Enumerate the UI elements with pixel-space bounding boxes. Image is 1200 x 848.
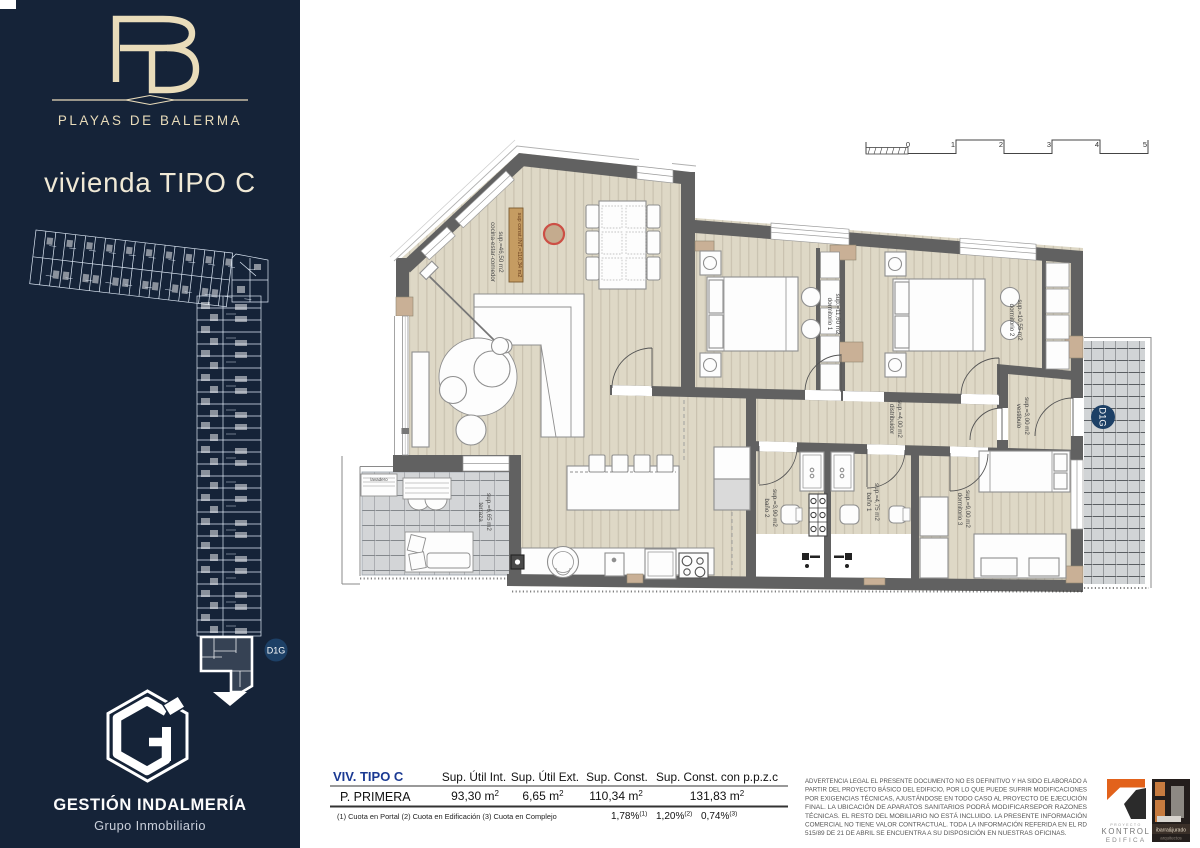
svg-text:FINAL. LA UBICACIÓN DE APARATO: FINAL. LA UBICACIÓN DE APARATOS SANITARI… (805, 802, 1087, 811)
svg-text:2: 2 (999, 140, 1003, 149)
svg-text:sup const.INT.=110,34 m2: sup const.INT.=110,34 m2 (516, 213, 522, 278)
svg-text:cocina-estar-comedor: cocina-estar-comedor (489, 222, 496, 282)
svg-text:(1) Cuota en Portal (2) Cuota: (1) Cuota en Portal (2) Cuota en Edifica… (337, 812, 557, 821)
svg-text:distribuidor: distribuidor (888, 404, 895, 434)
svg-text:sup.=11,60 m2: sup.=11,60 m2 (834, 294, 841, 335)
svg-text:vivienda TIPO C: vivienda TIPO C (44, 167, 256, 198)
svg-text:PARTIR DEL PROYECTO BÁSICO DEL: PARTIR DEL PROYECTO BÁSICO DEL EDIFICIO,… (805, 785, 1087, 794)
svg-text:COMERCIAL NO TIENE VALOR CONTR: COMERCIAL NO TIENE VALOR CONTRACTUAL. TO… (805, 820, 1087, 829)
svg-text:ADVERTENCIA LEGAL EL PRESENTE: ADVERTENCIA LEGAL EL PRESENTE DOCUMENTO … (805, 778, 1088, 785)
svg-text:terraza: terraza (477, 502, 484, 522)
svg-text:sup.=46,50 m2: sup.=46,50 m2 (497, 231, 504, 273)
svg-text:sup.=3,90 m2: sup.=3,90 m2 (771, 489, 778, 527)
svg-text:4: 4 (1095, 140, 1099, 149)
svg-text:TÉCNICAS. EL RESTO DEL MOBILIA: TÉCNICAS. EL RESTO DEL MOBILIARIO NO EST… (805, 811, 1087, 820)
svg-text:3: 3 (1047, 140, 1051, 149)
svg-text:5: 5 (1143, 140, 1147, 149)
svg-text:1: 1 (951, 140, 955, 149)
svg-text:VIV. TIPO C: VIV. TIPO C (333, 769, 404, 784)
svg-text:dormitorio 1: dormitorio 1 (826, 298, 833, 331)
svg-text:sup.=6,65 m2: sup.=6,65 m2 (485, 493, 492, 531)
svg-text:Sup. Útil Ext.: Sup. Útil Ext. (511, 770, 579, 784)
svg-text:sup.=4,75 m2: sup.=4,75 m2 (873, 483, 880, 521)
svg-text:1,78%(1): 1,78%(1) (611, 811, 647, 823)
svg-text:sup.=10,55 m2: sup.=10,55 m2 (1016, 299, 1023, 341)
svg-text:Sup. Const. con p.p.z.c: Sup. Const. con p.p.z.c (656, 770, 778, 784)
svg-text:dormitorio 2: dormitorio 2 (1008, 304, 1015, 337)
svg-text:EDIFICA: EDIFICA (1106, 837, 1147, 844)
svg-text:D1G: D1G (1097, 407, 1108, 427)
svg-text:arquitectos: arquitectos (1160, 836, 1182, 841)
svg-text:Sup. Const.: Sup. Const. (586, 770, 648, 784)
svg-text:P. PRIMERA: P. PRIMERA (340, 790, 411, 804)
svg-text:110,34 m2: 110,34 m2 (589, 789, 643, 803)
svg-text:Sup. Útil Int.: Sup. Útil Int. (442, 770, 506, 784)
svg-text:1,20%(2): 1,20%(2) (656, 811, 692, 823)
svg-text:baño 1: baño 1 (865, 493, 872, 512)
svg-text:D1G: D1G (267, 646, 286, 656)
svg-text:KONTROL: KONTROL (1102, 827, 1151, 836)
svg-text:baño 2: baño 2 (763, 499, 770, 518)
svg-text:sup.=9,00 m2: sup.=9,00 m2 (964, 490, 971, 528)
svg-text:sup.=4,00 m2: sup.=4,00 m2 (896, 400, 903, 438)
svg-text:Grupo Inmobiliario: Grupo Inmobiliario (94, 818, 206, 833)
svg-text:0,74%(3): 0,74%(3) (701, 811, 737, 823)
svg-text:93,30 m2: 93,30 m2 (451, 789, 499, 803)
svg-text:lavadero: lavadero (370, 477, 388, 482)
svg-text:POR EXIGENCIAS TÉCNICAS, AJUST: POR EXIGENCIAS TÉCNICAS, AJUSTÁNDOSE EN … (805, 793, 1087, 802)
svg-text:131,83 m2: 131,83 m2 (690, 789, 745, 803)
svg-text:vestibulo: vestibulo (1015, 404, 1022, 429)
svg-text:0: 0 (906, 140, 910, 149)
svg-text:PLAYAS DE BALERMA: PLAYAS DE BALERMA (58, 113, 242, 128)
svg-text:ibarra&jurado: ibarra&jurado (1156, 828, 1186, 834)
svg-text:515/89 DE 21 DE ABRIL SE ENCUE: 515/89 DE 21 DE ABRIL SE ENCUENTRA A SU … (805, 828, 1067, 837)
svg-text:GESTIÓN INDALMERÍA: GESTIÓN INDALMERÍA (53, 795, 246, 814)
svg-text:6,65 m2: 6,65 m2 (522, 789, 564, 803)
svg-text:sup.=3,00 m2: sup.=3,00 m2 (1023, 397, 1030, 435)
svg-text:dormitorio 3: dormitorio 3 (956, 493, 963, 526)
